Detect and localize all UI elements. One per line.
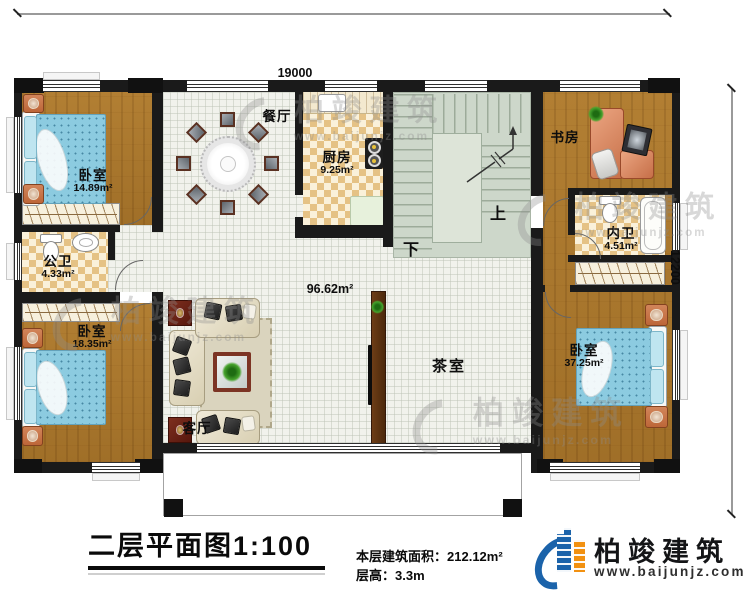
room-name: 厨房 bbox=[305, 150, 369, 165]
brand-logo-icon bbox=[538, 526, 590, 588]
floor-height-label: 层高： bbox=[356, 568, 395, 583]
wall bbox=[568, 188, 672, 195]
dining-chair bbox=[220, 112, 235, 127]
wall bbox=[383, 92, 393, 247]
window-sill bbox=[680, 330, 688, 400]
room-area: 4.33m² bbox=[28, 269, 88, 281]
column bbox=[14, 78, 44, 93]
room-name: 书房 bbox=[537, 130, 593, 145]
room-area: 37.25m² bbox=[544, 358, 624, 370]
brand-url: www.baijunjz.com bbox=[594, 564, 746, 579]
dining-chair bbox=[220, 200, 235, 215]
sofa-cushion bbox=[204, 302, 223, 321]
nightstand bbox=[645, 304, 668, 326]
window bbox=[14, 243, 22, 280]
wall bbox=[568, 195, 575, 235]
room-label-bedroom-right: 卧室 37.25m² bbox=[544, 343, 624, 370]
window bbox=[325, 80, 377, 92]
room-name: 公卫 bbox=[28, 254, 88, 269]
room-label-study: 书房 bbox=[537, 130, 593, 145]
window bbox=[425, 80, 487, 92]
nightstand bbox=[23, 184, 44, 204]
window bbox=[550, 462, 640, 473]
stair-flight-left bbox=[394, 94, 432, 254]
room-label-kitchen: 厨房 9.25m² bbox=[305, 150, 369, 177]
window bbox=[92, 462, 140, 473]
closet-bedroom-bottom-left bbox=[22, 303, 120, 322]
room-name: 卧室 bbox=[544, 343, 624, 358]
dining-table bbox=[200, 136, 256, 192]
kitchen-sink-icon bbox=[318, 94, 346, 112]
floor-area-label: 本层建筑面积： bbox=[356, 549, 447, 564]
wall bbox=[531, 228, 543, 473]
column bbox=[14, 459, 42, 473]
sofa-pillow bbox=[242, 303, 257, 320]
wall bbox=[295, 92, 303, 195]
dimension-top-value: 19000 bbox=[265, 66, 325, 80]
floor-area-value: 212.12m² bbox=[447, 549, 503, 564]
room-label-dining: 餐厅 bbox=[247, 109, 307, 124]
room-area: 4.51m² bbox=[591, 241, 651, 253]
plant-icon bbox=[588, 106, 604, 122]
sofa-pillow bbox=[241, 415, 256, 432]
window bbox=[187, 80, 268, 92]
room-area: 9.25m² bbox=[305, 165, 369, 177]
plant-icon bbox=[371, 300, 384, 314]
wall bbox=[14, 225, 120, 232]
window-sill bbox=[6, 117, 14, 193]
stair-direction-arrow bbox=[455, 122, 535, 190]
title-underline-light bbox=[88, 573, 325, 575]
column bbox=[648, 78, 680, 93]
stairs-up-label: 上 bbox=[490, 200, 506, 224]
room-name: 餐厅 bbox=[247, 109, 307, 124]
closet-bedroom-top-left bbox=[22, 203, 120, 225]
nightstand bbox=[23, 94, 44, 113]
wall bbox=[108, 225, 115, 260]
room-area: 18.35m² bbox=[52, 339, 132, 351]
room-name: 客厅 bbox=[172, 421, 222, 436]
stove-burner bbox=[368, 141, 381, 154]
wall bbox=[152, 92, 163, 225]
room-label-public-bath: 公卫 4.33m² bbox=[28, 254, 88, 281]
dimension-line-right bbox=[731, 88, 733, 515]
nightstand bbox=[645, 406, 668, 428]
sofa-cushion bbox=[225, 304, 243, 322]
brand-logo-building-orange bbox=[574, 540, 585, 572]
window-sill bbox=[6, 347, 14, 420]
window bbox=[14, 347, 22, 420]
floor-height-value: 3.3m bbox=[395, 568, 425, 583]
terrace-post bbox=[164, 499, 183, 517]
room-label-bedroom-bottom-left: 卧室 18.35m² bbox=[52, 324, 132, 351]
window bbox=[14, 117, 22, 193]
window-sill bbox=[43, 72, 100, 80]
tv-wall-panel bbox=[371, 291, 386, 445]
wall bbox=[152, 292, 163, 303]
floor-plan-page: 卧室 14.89m² 公卫 4.33m² 卧室 18.35m² 餐厅 厨房 9.… bbox=[0, 0, 750, 596]
room-name: 卧室 bbox=[52, 324, 132, 339]
bed-pillow bbox=[650, 331, 664, 367]
window bbox=[43, 80, 100, 92]
dimension-line-top bbox=[17, 13, 670, 15]
wall bbox=[152, 303, 163, 462]
room-label-bedroom-top-left: 卧室 14.89m² bbox=[53, 168, 133, 195]
terrace-post bbox=[503, 499, 522, 517]
bed-pillow bbox=[24, 352, 37, 387]
wall bbox=[14, 292, 120, 303]
window bbox=[197, 443, 500, 453]
floor-area-line: 本层建筑面积：212.12m² bbox=[356, 546, 503, 565]
room-area: 14.89m² bbox=[53, 183, 133, 195]
column bbox=[128, 78, 163, 93]
bed-pillow bbox=[24, 116, 37, 159]
room-label-tea: 茶室 bbox=[432, 355, 466, 376]
nightstand bbox=[22, 328, 43, 348]
window-sill bbox=[680, 203, 688, 250]
stove-burner bbox=[368, 154, 381, 167]
fridge-icon bbox=[350, 196, 384, 226]
nightstand bbox=[22, 426, 43, 446]
sink-icon bbox=[72, 233, 99, 252]
toilet-bowl-icon bbox=[602, 203, 618, 223]
side-table bbox=[168, 300, 192, 326]
sofa-cushion bbox=[223, 417, 242, 436]
column bbox=[654, 459, 680, 473]
window bbox=[560, 80, 640, 92]
brand-logo-building-blue bbox=[557, 528, 571, 572]
window bbox=[672, 203, 680, 250]
dining-chair bbox=[176, 156, 191, 171]
bed-pillow bbox=[24, 389, 37, 424]
dining-chair bbox=[264, 156, 279, 171]
bed-pillow bbox=[650, 369, 664, 404]
room-label-living: 客厅 bbox=[172, 421, 222, 436]
wall bbox=[537, 285, 545, 292]
title-underline bbox=[88, 566, 325, 570]
drawing-title: 二层平面图1:100 bbox=[88, 524, 312, 563]
room-label-inner-bath: 内卫 4.51m² bbox=[591, 226, 651, 253]
window-sill bbox=[6, 243, 14, 280]
sofa-cushion bbox=[173, 379, 191, 397]
dimension-right-value: 12200 bbox=[668, 250, 682, 320]
wall bbox=[152, 225, 163, 232]
closet-right-wing bbox=[575, 262, 665, 285]
hall-area-label: 96.62m² bbox=[295, 282, 365, 296]
room-name: 卧室 bbox=[53, 168, 133, 183]
tv-icon bbox=[368, 345, 372, 405]
room-name: 内卫 bbox=[591, 226, 651, 241]
window bbox=[672, 330, 680, 400]
floor-height-line: 层高：3.3m bbox=[356, 565, 425, 584]
plant-icon bbox=[222, 362, 242, 382]
stairs-down-label: 下 bbox=[403, 236, 419, 260]
wall bbox=[570, 285, 672, 292]
wall bbox=[295, 225, 393, 238]
terrace bbox=[163, 453, 522, 516]
window-sill bbox=[550, 473, 640, 481]
window-sill bbox=[92, 473, 140, 481]
